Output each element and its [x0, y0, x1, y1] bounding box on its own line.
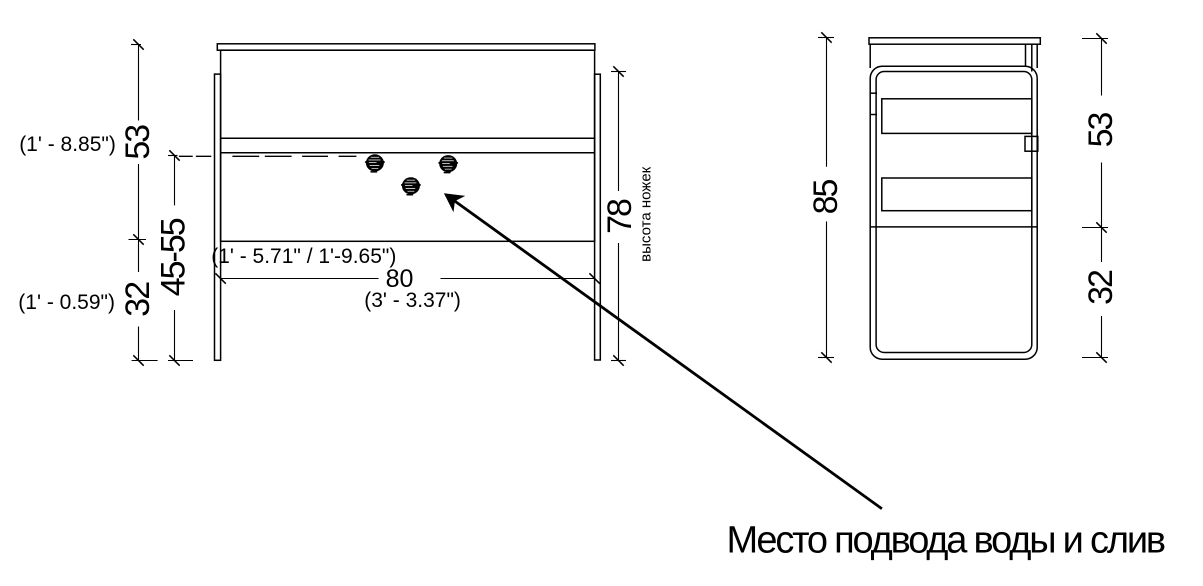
svg-text:(1' - 5.71" / 1'-9.65"): (1' - 5.71" / 1'-9.65") — [211, 245, 396, 268]
svg-text:78: 78 — [601, 199, 639, 234]
svg-text:32: 32 — [119, 282, 157, 317]
svg-text:32: 32 — [1082, 270, 1120, 305]
svg-text:53: 53 — [119, 125, 157, 160]
svg-text:(1' - 8.85"): (1' - 8.85") — [19, 133, 116, 156]
svg-text:высота ножек: высота ножек — [638, 166, 655, 261]
svg-text:(3' - 3.37"): (3' - 3.37") — [364, 289, 461, 312]
svg-text:45-55: 45-55 — [155, 218, 193, 296]
svg-text:85: 85 — [807, 180, 845, 215]
svg-text:Место подвода воды и слив: Место подвода воды и слив — [727, 519, 1165, 561]
svg-text:53: 53 — [1082, 113, 1120, 148]
svg-text:(1' - 0.59"): (1' - 0.59") — [18, 291, 115, 314]
